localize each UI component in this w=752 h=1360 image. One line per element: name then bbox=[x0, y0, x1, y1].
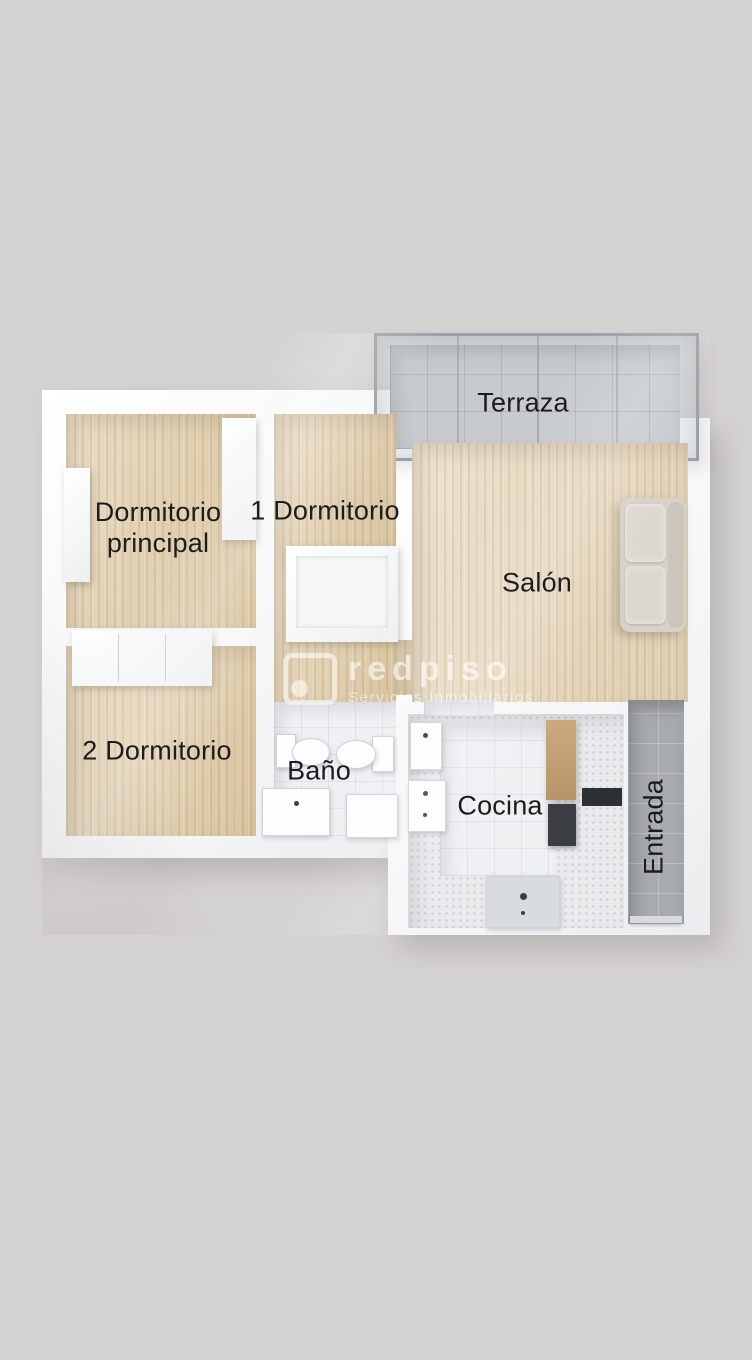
sofa-cushion bbox=[625, 566, 666, 624]
bathroom-sink-cabinet bbox=[262, 788, 330, 836]
room-label-cocina: Cocina bbox=[457, 791, 542, 822]
wardrobe-door-seam bbox=[165, 634, 166, 682]
watermark: redpiso Servicios Inmobiliarios bbox=[283, 652, 534, 706]
wardrobe-door-seam bbox=[118, 634, 119, 682]
sink-drain-dot bbox=[520, 893, 527, 900]
redpiso-logo-dot bbox=[291, 680, 308, 697]
watermark-text: redpiso Servicios Inmobiliarios bbox=[348, 652, 534, 706]
terraza-mullion-icon bbox=[616, 336, 618, 458]
room-label-salon: Salón bbox=[502, 568, 572, 599]
watermark-tagline: Servicios Inmobiliarios bbox=[348, 689, 534, 706]
desk-top bbox=[296, 556, 388, 628]
redpiso-logo-icon bbox=[283, 653, 337, 705]
kitchen-tall-cabinet bbox=[546, 720, 576, 800]
sink-drain-dot bbox=[294, 801, 299, 806]
terraza-mullion-icon bbox=[457, 336, 459, 458]
sofa-backrest bbox=[668, 502, 684, 628]
sink-drain-dot bbox=[423, 813, 427, 817]
sink-drain-dot bbox=[521, 911, 525, 915]
desk-dormitorio-1 bbox=[286, 546, 398, 642]
room-dormitorio-1-floor bbox=[274, 414, 396, 562]
kitchen-island-sink bbox=[486, 876, 560, 928]
sofa bbox=[620, 498, 686, 632]
kitchen-counter-left bbox=[408, 780, 446, 832]
shelf-principal bbox=[64, 468, 90, 582]
watermark-brand: redpiso bbox=[348, 652, 534, 686]
room-label-terraza: Terraza bbox=[477, 388, 568, 419]
sink-drain-dot bbox=[423, 791, 428, 796]
room-label-dormitorio-1: 1 Dormitorio bbox=[250, 496, 399, 527]
room-label-dormitorio-principal: Dormitorio principal bbox=[95, 497, 222, 559]
kitchen-counter-top bbox=[410, 722, 442, 770]
oven bbox=[548, 804, 576, 846]
sofa-cushion bbox=[625, 504, 666, 562]
shower-tray bbox=[346, 794, 398, 838]
entrada-door-sill bbox=[630, 916, 682, 923]
floorplan-render: Terraza Dormitorio principal 1 Dormitori… bbox=[0, 0, 752, 1360]
room-label-bano: Baño bbox=[287, 756, 351, 787]
wardrobe-dormitorio-2 bbox=[72, 630, 212, 686]
room-label-dormitorio-2: 2 Dormitorio bbox=[82, 736, 231, 767]
faucet-dot bbox=[423, 733, 428, 738]
cooktop bbox=[582, 788, 622, 806]
room-label-entrada: Entrada bbox=[639, 779, 670, 875]
